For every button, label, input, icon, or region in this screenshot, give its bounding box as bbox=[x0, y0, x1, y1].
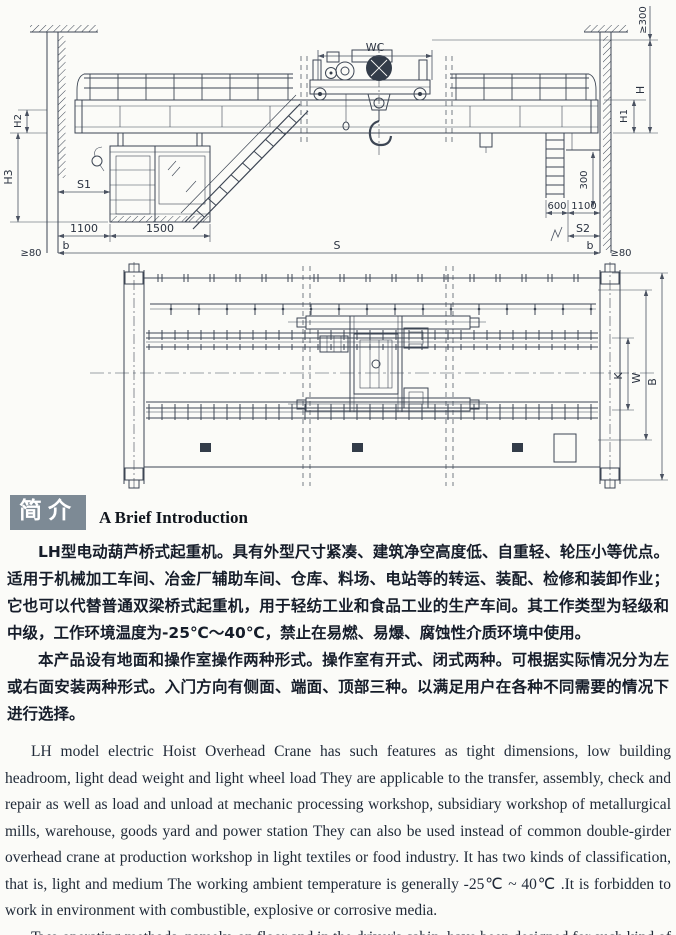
left-end-carriage bbox=[124, 262, 144, 490]
dim-min300: ≥300 bbox=[638, 6, 649, 33]
access-stairs bbox=[181, 95, 308, 229]
dim-wc: WC bbox=[366, 41, 385, 54]
en-paragraph-1: LH model electric Hoist Overhead Crane h… bbox=[0, 739, 676, 925]
dim-1100-right: 1100 bbox=[571, 201, 596, 212]
right-platform bbox=[480, 133, 600, 153]
bridge-girder bbox=[75, 100, 598, 133]
dim-min80-left: ≥80 bbox=[20, 248, 41, 259]
cn-paragraph-1: LH型电动葫芦桥式起重机。具有外型尺寸紧凑、建筑净空高度低、自重轻、轮压小等优点… bbox=[0, 539, 676, 647]
dim-h: H bbox=[634, 86, 647, 94]
cn-paragraph-2: 本产品设有地面和操作室操作两种形式。操作室有开式、闭式两种。可根据实际情况分为左… bbox=[0, 647, 676, 728]
dim-b-left: b bbox=[63, 239, 70, 252]
dim-b-right: b bbox=[587, 239, 594, 252]
dim-k: K bbox=[612, 372, 625, 380]
section-badge-zh: 简介 bbox=[10, 495, 86, 530]
plan-dimensions: K W B bbox=[598, 273, 668, 480]
dim-1100-left: 1100 bbox=[70, 222, 98, 235]
dim-s: S bbox=[334, 239, 341, 252]
warning-bell-icon bbox=[92, 147, 104, 171]
driver-cabin bbox=[110, 133, 210, 222]
section-heading: 简介 A Brief Introduction bbox=[0, 490, 676, 530]
dim-s1: S1 bbox=[77, 178, 91, 191]
bridge-girders-plan bbox=[144, 274, 600, 467]
access-ladder bbox=[546, 133, 564, 198]
plan-view-drawing: K W B bbox=[0, 262, 676, 490]
dim-s2: S2 bbox=[576, 222, 590, 235]
elevation-drawing: WC ≥300 H H1 H2 H3 S1 bbox=[0, 0, 676, 262]
left-wall-column bbox=[30, 25, 98, 253]
dim-b-span: B bbox=[646, 378, 659, 386]
section-title-en: A Brief Introduction bbox=[99, 508, 248, 530]
dim-1500: 1500 bbox=[146, 222, 174, 235]
dim-h1: H1 bbox=[619, 109, 630, 123]
hoist-trolley bbox=[310, 44, 430, 158]
dim-300: 300 bbox=[579, 170, 590, 189]
plan-break-lines bbox=[303, 266, 453, 486]
right-wall-column bbox=[584, 25, 628, 253]
catalog-page: WC ≥300 H H1 H2 H3 S1 bbox=[0, 0, 676, 935]
en-paragraph-2: Two operating methods, namely, on floor … bbox=[0, 925, 676, 935]
dim-min80-right: ≥80 bbox=[610, 248, 631, 259]
dim-600: 600 bbox=[547, 201, 566, 212]
dim-h3: H3 bbox=[2, 169, 15, 184]
dim-h2: H2 bbox=[13, 114, 24, 128]
dim-w: W bbox=[630, 372, 643, 383]
